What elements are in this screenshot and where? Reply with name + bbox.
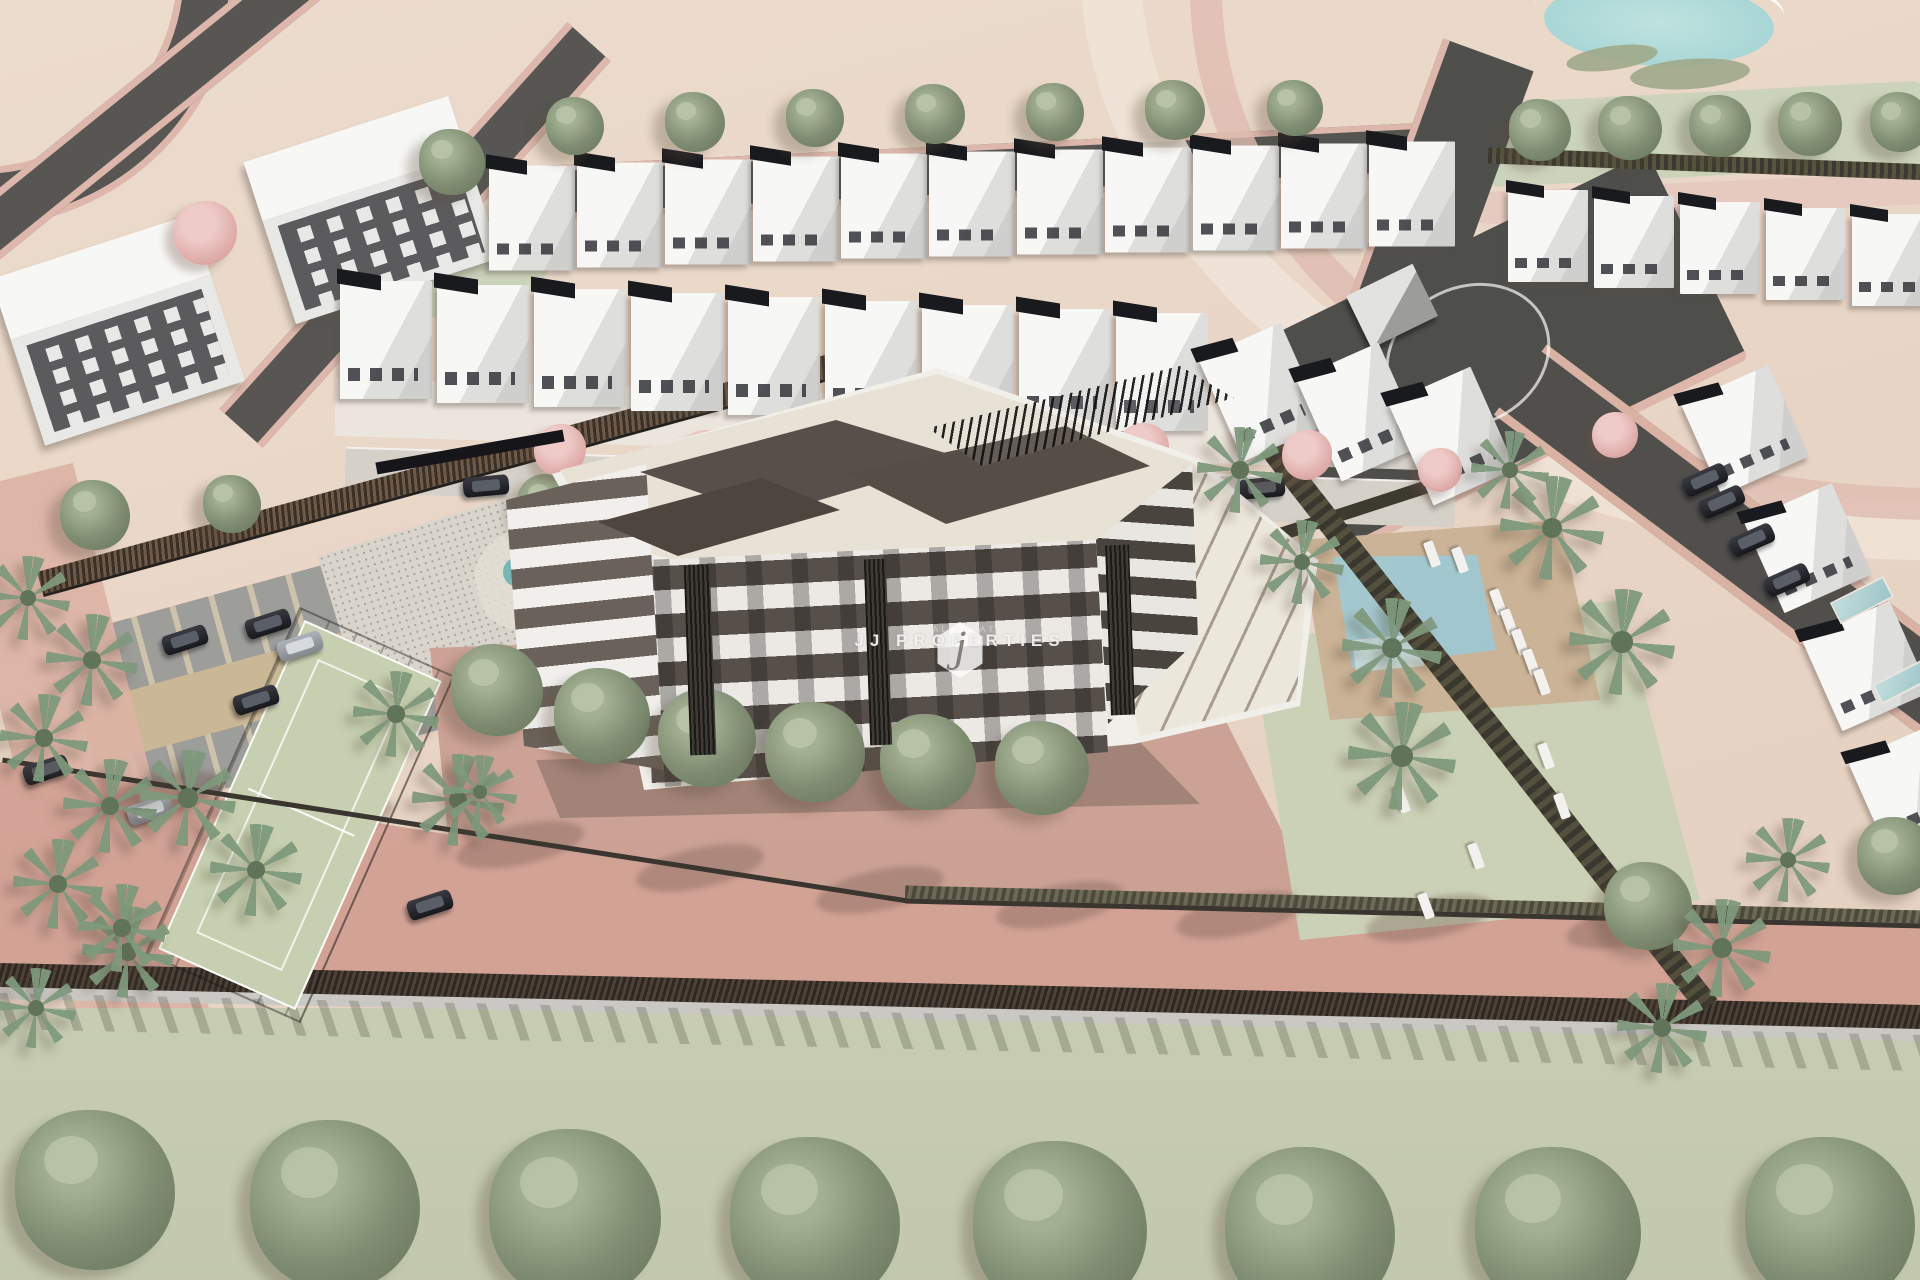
palm xyxy=(140,750,236,846)
villa xyxy=(1193,146,1279,251)
palm xyxy=(1348,702,1456,810)
car xyxy=(462,474,510,498)
tree xyxy=(554,668,650,764)
villa xyxy=(1281,144,1367,249)
villa xyxy=(1508,190,1588,282)
villa xyxy=(841,154,927,259)
villa xyxy=(1680,202,1760,294)
villa xyxy=(665,160,751,265)
tree xyxy=(905,84,965,144)
palm xyxy=(1673,899,1771,997)
palm xyxy=(0,694,88,782)
tree xyxy=(1145,80,1205,140)
palm xyxy=(1746,818,1830,902)
villa xyxy=(1594,196,1674,288)
tree xyxy=(15,1110,175,1270)
villa xyxy=(534,289,626,407)
palm xyxy=(78,884,166,972)
villa xyxy=(577,163,663,268)
palm xyxy=(210,824,302,916)
villa xyxy=(753,157,839,262)
tree xyxy=(419,129,485,195)
tree xyxy=(60,480,130,550)
tree xyxy=(786,89,844,147)
villa xyxy=(437,285,529,403)
tree xyxy=(1870,92,1920,152)
villa xyxy=(489,166,575,271)
tree xyxy=(1267,80,1323,136)
villa xyxy=(631,293,723,411)
palm xyxy=(1342,598,1442,698)
tree xyxy=(1598,96,1662,160)
tree xyxy=(1857,817,1920,895)
tree xyxy=(1689,95,1751,157)
palm xyxy=(46,614,138,706)
villa xyxy=(1369,142,1455,247)
villa xyxy=(1017,150,1103,255)
palm xyxy=(353,671,439,757)
tree xyxy=(880,714,976,810)
palm xyxy=(1569,589,1675,695)
tree xyxy=(1509,99,1571,161)
villa xyxy=(1852,214,1920,306)
villa xyxy=(929,152,1015,257)
villa xyxy=(340,281,432,399)
palm xyxy=(1471,431,1549,509)
tree xyxy=(765,702,865,802)
ftree xyxy=(173,201,237,265)
palm xyxy=(1617,983,1707,1073)
palm xyxy=(443,755,517,829)
tree xyxy=(546,97,604,155)
tree xyxy=(995,721,1089,815)
aerial-render-scene: j JJ PROPERTIES REAL ESTATE xyxy=(0,0,1920,1280)
tree xyxy=(1778,92,1842,156)
palm xyxy=(1197,427,1283,513)
tree xyxy=(1026,83,1084,141)
tree xyxy=(451,644,543,736)
watermark-tagline-text: REAL ESTATE xyxy=(914,625,1005,634)
tree xyxy=(665,92,725,152)
palm xyxy=(1260,520,1344,604)
villa xyxy=(1766,208,1846,300)
villa xyxy=(1105,148,1191,253)
watermark-brand-text: JJ PROPERTIES xyxy=(854,631,1065,651)
tree xyxy=(203,475,261,533)
villa xyxy=(728,297,820,415)
